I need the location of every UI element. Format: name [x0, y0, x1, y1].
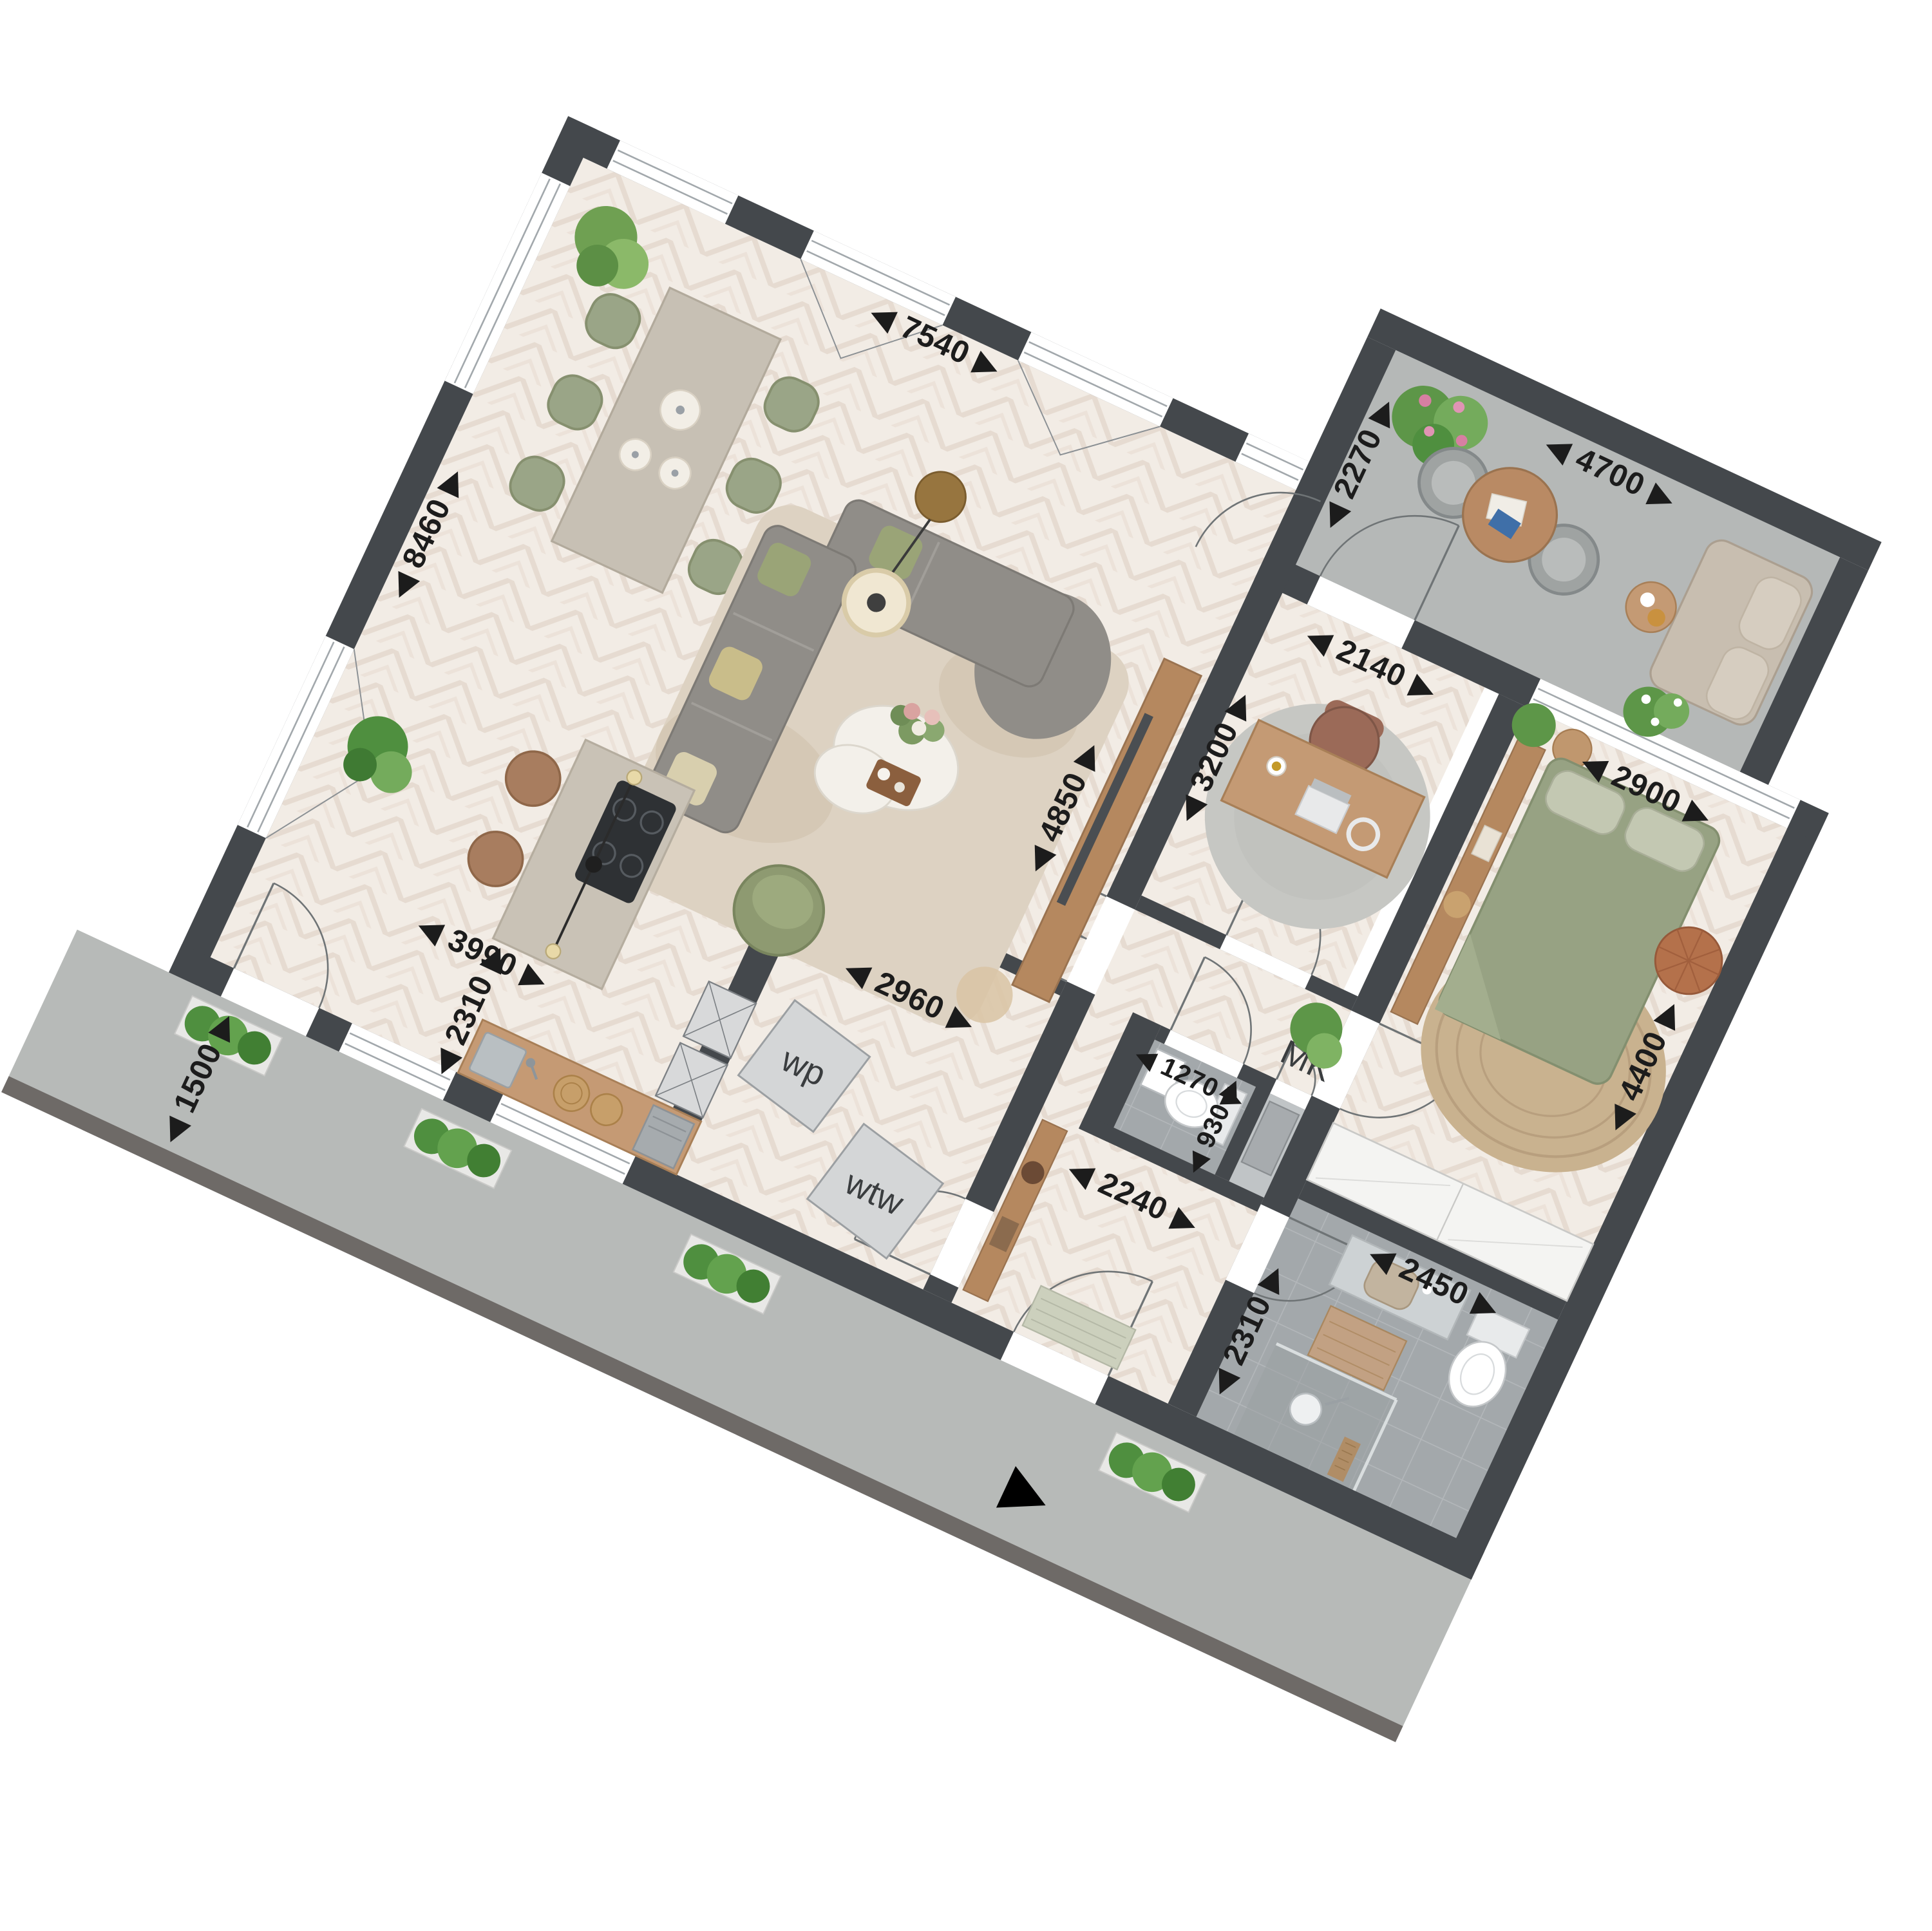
floor-plan-stage: wp wtw MK — [1, 0, 1932, 1931]
rotated-plan: wp wtw MK — [1, 0, 1932, 1742]
floor-plan-svg: wp wtw MK — [1, 0, 1932, 1931]
